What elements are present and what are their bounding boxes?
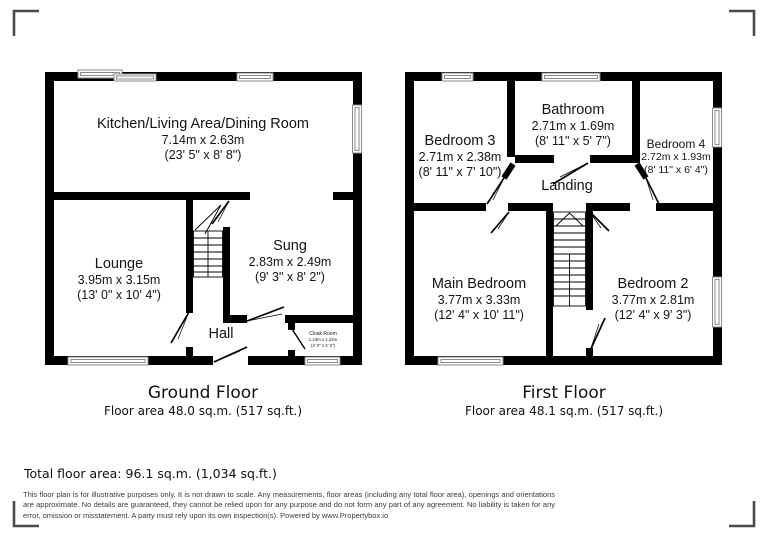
room-label-sung: Sung 2.83m x 2.49m (9' 3" x 8' 2") (249, 238, 332, 285)
total-floor-area: Total floor area: 96.1 sq.m. (1,034 sq.f… (24, 466, 277, 481)
window-kitchen-right (353, 105, 362, 153)
room-label-bedroom4: Bedroom 4 2.72m x 1.93m (8' 11" x 6' 4") (641, 137, 710, 177)
room-dim-metric: 2.71m x 1.69m (532, 119, 615, 134)
room-dim-imperial: (4' 0" x 4' 0") (309, 343, 337, 348)
room-dim-metric: 1.23m x 1.22m (309, 337, 337, 342)
room-label-kitchen: Kitchen/Living Area/Dining Room 7.14m x … (97, 116, 309, 163)
room-name: Bathroom (532, 102, 615, 119)
window-bedroom2-right (713, 277, 722, 327)
room-label-bathroom: Bathroom 2.71m x 1.69m (8' 11" x 5' 7") (532, 102, 615, 149)
bedroom3-door (487, 178, 504, 204)
room-name: Bedroom 2 (612, 276, 695, 293)
room-name: Main Bedroom (432, 276, 526, 293)
sung-door (247, 307, 284, 321)
room-dim-imperial: (8' 11" x 6' 4") (641, 164, 710, 177)
room-dim-metric: 3.77m x 2.81m (612, 293, 695, 308)
room-label-hall: Hall (209, 326, 234, 343)
room-label-cloak-room: Cloak Room 1.23m x 1.22m (4' 0" x 4' 0") (309, 331, 337, 348)
room-dim-imperial: (12' 4" x 9' 3") (612, 308, 695, 323)
lounge-door (171, 312, 189, 343)
room-label-lounge: Lounge 3.95m x 3.15m (13' 0" x 10' 4") (77, 256, 161, 303)
room-name: Bedroom 3 (419, 133, 502, 150)
room-label-main-bedroom: Main Bedroom 3.77m x 3.33m (12' 4" x 10'… (432, 276, 526, 323)
window-main-bedroom-bottom (438, 357, 503, 365)
room-label-bedroom2: Bedroom 2 3.77m x 2.81m (12' 4" x 9' 3") (612, 276, 695, 323)
stair-cupboard-door (590, 318, 605, 351)
room-label-landing: Landing (541, 178, 593, 195)
first-floor-stairs (554, 212, 586, 306)
window-cloak-bottom (305, 357, 340, 365)
bracket-top-left-icon (14, 11, 39, 36)
ground-floor-title: Ground Floor (148, 383, 258, 403)
room-name: Lounge (77, 256, 161, 273)
room-name: Kitchen/Living Area/Dining Room (97, 116, 309, 133)
room-name: Hall (209, 326, 234, 343)
room-dim-metric: 2.83m x 2.49m (249, 255, 332, 270)
room-dim-imperial: (13' 0" x 10' 4") (77, 288, 161, 303)
window-lounge-bottom (68, 357, 148, 365)
room-dim-metric: 3.77m x 3.33m (432, 293, 526, 308)
disclaimer-text: This floor plan is for illustrative purp… (23, 490, 555, 521)
cloak-door (292, 329, 305, 349)
bracket-bottom-right-icon (729, 501, 754, 526)
room-name: Bedroom 4 (641, 137, 710, 151)
room-label-bedroom3: Bedroom 3 2.71m x 2.38m (8' 11" x 7' 10"… (419, 133, 502, 180)
room-name: Sung (249, 238, 332, 255)
window-kitchen-top-right (237, 73, 273, 81)
kitchen-stair-door (212, 201, 229, 224)
floor-plan-page: { "meta": { "wall_color": "#000000", "wi… (0, 0, 768, 537)
front-door (214, 347, 247, 362)
bracket-top-right-icon (729, 11, 754, 36)
room-dim-metric: 2.71m x 2.38m (419, 150, 502, 165)
room-dim-metric: 2.72m x 1.93m (641, 151, 710, 164)
room-dim-imperial: (8' 11" x 7' 10") (419, 165, 502, 180)
window-bedroom3-top (442, 73, 473, 81)
room-dim-imperial: (9' 3" x 8' 2") (249, 270, 332, 285)
window-bedroom4-right (713, 108, 722, 147)
room-dim-metric: 3.95m x 3.15m (77, 273, 161, 288)
room-dim-imperial: (8' 11" x 5' 7") (532, 134, 615, 149)
bedroom4-door (646, 178, 659, 204)
room-dim-imperial: (12' 4" x 10' 11") (432, 308, 526, 323)
window-bathroom-top (542, 73, 600, 81)
room-dim-metric: 7.14m x 2.63m (97, 133, 309, 148)
room-name: Landing (541, 178, 593, 195)
room-dim-imperial: (23' 5" x 8' 8") (97, 148, 309, 163)
ground-floor-plan (45, 70, 362, 365)
first-floor-area: Floor area 48.1 sq.m. (517 sq.ft.) (465, 404, 663, 418)
first-floor-title: First Floor (522, 383, 605, 403)
ground-floor-area: Floor area 48.0 sq.m. (517 sq.ft.) (104, 404, 302, 418)
main-bedroom-door (491, 212, 509, 233)
